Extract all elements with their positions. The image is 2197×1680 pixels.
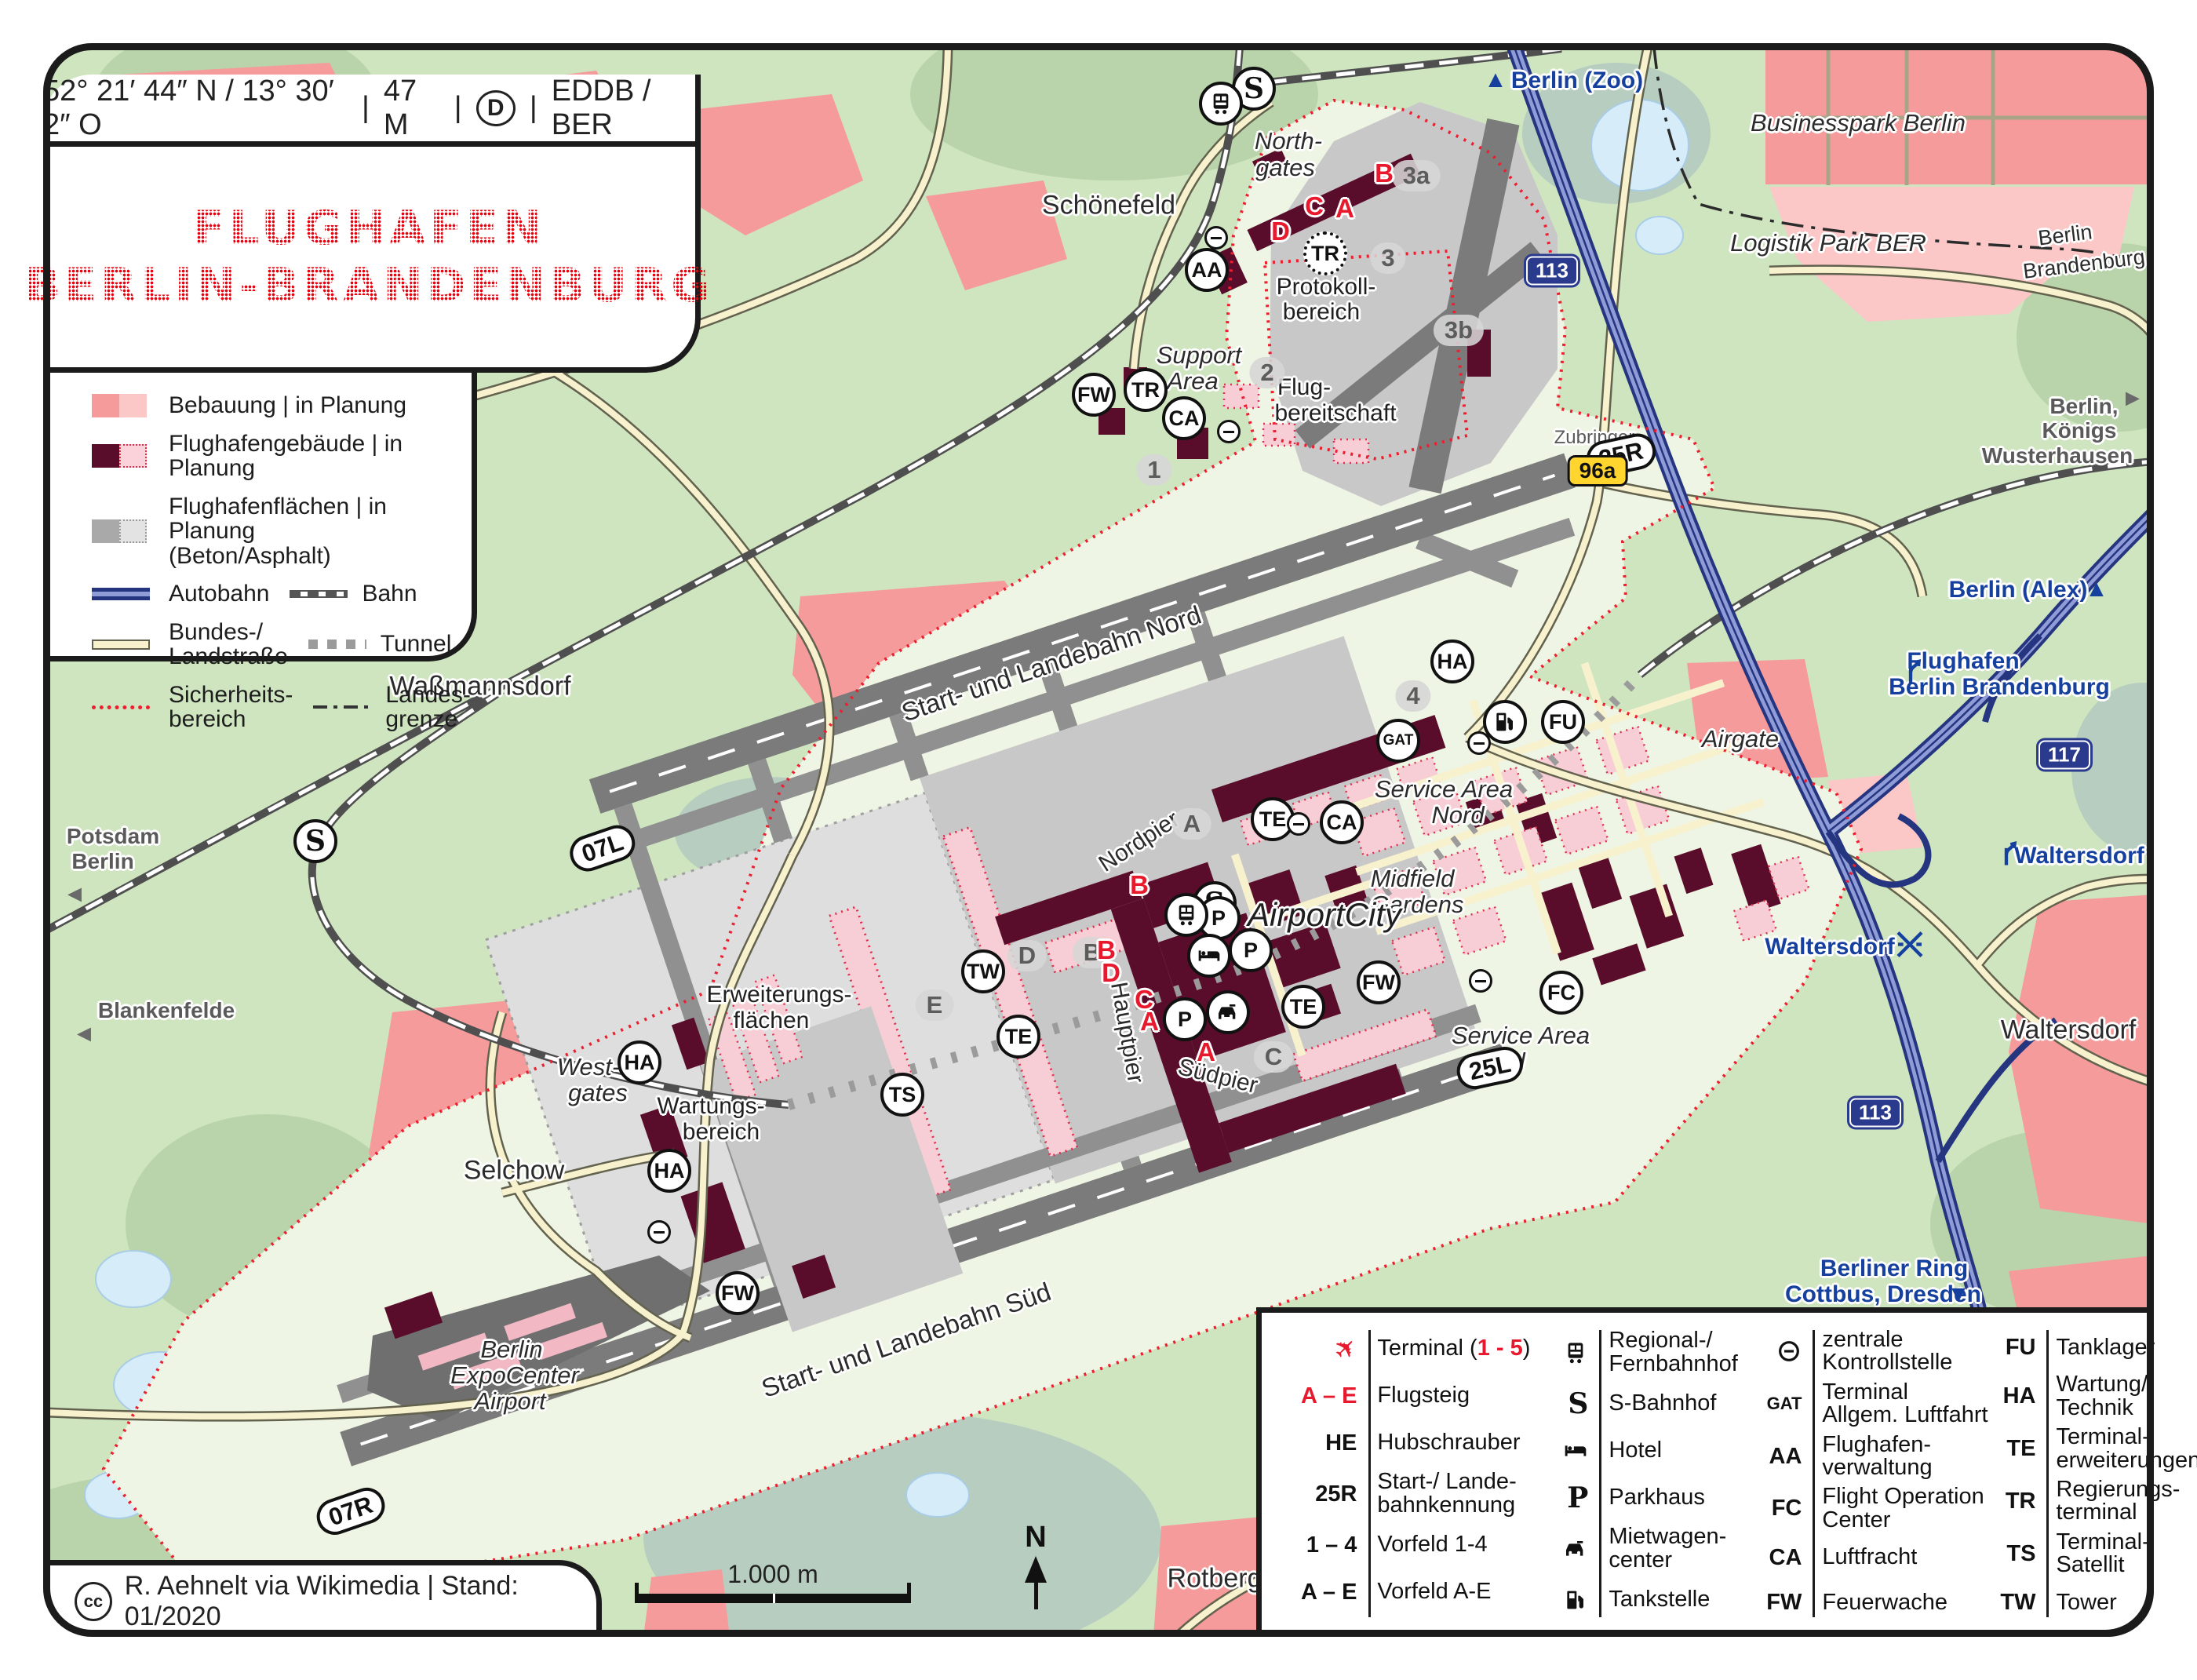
legend-cell-tunnel: Tunnel [308, 632, 452, 657]
symbol-table-row: ✈Terminal (1 - 5) [1274, 1325, 1550, 1372]
train-icon [1199, 82, 1243, 126]
separator: | [530, 91, 537, 125]
column-divider [2046, 1330, 2049, 1617]
road-badge-96a: 96a [1568, 455, 1628, 487]
direction-arrow: ◄ [72, 1021, 96, 1048]
legend-label: Flughafengebäude | in Planung [169, 432, 456, 481]
marker-fu: FU [1541, 700, 1585, 744]
map-label-selchow: Selchow [464, 1156, 565, 1186]
legend-label: Bebauung | in Planung [169, 393, 406, 418]
symbol-code: FW [1758, 1590, 1811, 1616]
symbol-code: A – E [1274, 1580, 1366, 1605]
country-badge: D [476, 90, 516, 126]
map-label-berlin-zoo-: Berlin (Zoo) [1511, 67, 1643, 94]
kontrollstelle-icon [1287, 812, 1310, 836]
gebaeude-swatch [92, 444, 150, 468]
map-label-airgate: Airgate [1702, 725, 1779, 753]
marker-fw: FW [1072, 373, 1116, 417]
map-label-k-nigs: Königs [2042, 418, 2117, 443]
symbol-table-row: Mietwagen-center [1550, 1521, 1758, 1576]
legend-row-bebauung: Bebauung | in Planung [92, 393, 456, 418]
map-page: SchönefeldWaßmannsdorfSelchowRotbergWalt… [0, 0, 2197, 1680]
map-label-rotberg: Rotberg [1168, 1564, 1262, 1594]
symbol-table-row: zentraleKontrollstelle [1758, 1325, 1998, 1378]
marker-p: P [1163, 997, 1207, 1041]
symbol-table-row: FWFeuerwache [1758, 1580, 1998, 1625]
coordinates: 52° 21′ 44″ N / 13° 30′ 2″ O [43, 75, 348, 142]
symbol-table-column-1: ✈Terminal (1 - 5)A – EFlugsteigHEHubschr… [1274, 1325, 1550, 1625]
map-label-wartungs-: Wartungs- [657, 1093, 764, 1120]
map-label-north-: North- [1255, 127, 1322, 155]
column-divider [1368, 1330, 1371, 1617]
symbol-table-row: HAWartung/Technik [1998, 1370, 2197, 1423]
legend-row-autobahn-bahn: Autobahn Bahn [92, 581, 456, 607]
apron-label-d: D [1007, 940, 1047, 971]
plane-icon: ✈ [1274, 1333, 1366, 1365]
direction-arrow: ► [2121, 385, 2144, 412]
map-label-berlin: Berlin [71, 849, 133, 874]
map-label-airport: Airport [474, 1387, 545, 1416]
symbol-label: Luftfracht [1811, 1546, 1998, 1569]
legend-label: Flughafenflächen | in Planung(Beton/Asph… [169, 494, 456, 569]
map-label-berlin-alex-: Berlin (Alex) [1949, 577, 2088, 603]
symbol-table-row: SS-Bahnhof [1550, 1380, 1758, 1427]
gate-letter-b: B [1375, 159, 1394, 188]
symbol-code: AA [1758, 1444, 1811, 1470]
symbol-code: HE [1274, 1430, 1366, 1456]
bed-icon [1187, 934, 1231, 978]
symbol-code: FC [1758, 1496, 1811, 1521]
marker-ts: TS [880, 1073, 924, 1117]
symbol-table-row: FCFlight OperationCenter [1758, 1483, 1998, 1536]
autobahn-badge-117: 117 [2039, 741, 2090, 770]
autobahn-badge-113: 113 [1849, 1099, 1901, 1128]
direction-arrow: ◄ [63, 881, 86, 908]
map-label-protokoll-: Protokoll- [1277, 274, 1376, 301]
map-label-sch-nefeld: Schönefeld [1042, 191, 1175, 221]
marker-fw: FW [716, 1271, 760, 1315]
symbol-code: S [1550, 1387, 1598, 1420]
map-label-service-area: Service Area [1375, 775, 1513, 804]
gate-letter-d: D [1271, 217, 1290, 246]
marker-tr: TR [1124, 368, 1168, 412]
marker-tr-planned: TR [1303, 231, 1347, 275]
apron-label-3: 3 [1370, 242, 1405, 274]
apron-label-e: E [916, 989, 954, 1021]
kontrollstelle-icon [1217, 420, 1241, 443]
map-label-bereitschaft: bereitschaft [1274, 400, 1396, 427]
symbol-code: TS [1998, 1541, 2045, 1567]
scalebar-label: 1.000 m [635, 1560, 911, 1589]
symbol-label: Vorfeld A-E [1366, 1580, 1550, 1604]
kontrollstelle-icon [1467, 731, 1491, 755]
kontrollstelle-icon [1204, 226, 1228, 250]
motorway-exit-icon [1995, 838, 2026, 873]
map-label-erweiterungs-: Erweiterungs- [706, 982, 851, 1008]
map-label-gates: gates [568, 1079, 628, 1107]
flaechen-swatch [92, 519, 150, 543]
north-arrow [1025, 1556, 1047, 1583]
marker-fc: FC [1539, 971, 1583, 1015]
scale-bar: 1.000 m [635, 1560, 911, 1603]
bed-icon [1550, 1438, 1598, 1463]
marker-fw: FW [1357, 960, 1401, 1004]
direction-arrow: ▲ [2085, 576, 2108, 603]
symbol-code: TW [1998, 1590, 2045, 1616]
map-label-blankenfelde: Blankenfelde [98, 998, 235, 1023]
map-label-berliner-ring: Berliner Ring [1820, 1255, 1968, 1282]
gate-letter-a: A [1140, 1007, 1159, 1037]
legend-row-strasse-tunnel: Bundes-/Landstraße Tunnel [92, 620, 456, 669]
map-label-waltersdorf: Waltersdorf [1765, 934, 1895, 960]
gate-letter-b: B [1130, 870, 1149, 900]
map-label-flug-: Flug- [1277, 374, 1331, 401]
symbol-label: Regierungs-terminal [2045, 1478, 2197, 1525]
apron-label-c: C [1254, 1041, 1293, 1073]
symbol-table-row: FUTanklager [1998, 1325, 2197, 1370]
symbol-label: Mietwagen-center [1598, 1525, 1758, 1572]
map-label-service-area: Service Area [1452, 1022, 1590, 1050]
apron-label-4: 4 [1395, 680, 1430, 712]
map-label-fl-chen: flächen [734, 1008, 810, 1034]
apron-label-3b: 3b [1434, 315, 1484, 346]
marker-ha: HA [647, 1149, 691, 1193]
legend-row-sicherheit-grenze: Sicherheits-bereich Landes-grenze [92, 683, 456, 732]
map-label-bereich: bereich [1283, 299, 1360, 326]
legend-row-gebaeude: Flughafengebäude | in Planung [92, 432, 456, 481]
symbol-table-row: AAFlughafen-verwaltung [1758, 1430, 1998, 1483]
symbol-code: A – E [1274, 1383, 1366, 1409]
map-label-wusterhausen: Wusterhausen [1982, 443, 2133, 468]
map-label-gates: gates [1255, 154, 1315, 182]
autobahn-swatch [92, 588, 150, 600]
car-icon [1206, 990, 1250, 1034]
symbol-table-row: TWTower [1998, 1580, 2197, 1625]
map-label-logistik-park-ber: Logistik Park BER [1730, 229, 1926, 257]
map-label-area: Area [1167, 367, 1218, 395]
symbol-code: HA [1998, 1383, 2045, 1409]
map-label-midfield: Midfield [1371, 865, 1455, 893]
legend-label: Sicherheits-bereich [169, 683, 293, 732]
apron-label-3a: 3a [1392, 160, 1441, 191]
symbol-table-row: HEHubschrauber [1274, 1419, 1550, 1467]
symbol-label: Start-/ Lande-bahnkennung [1366, 1470, 1550, 1517]
elevation: 47 M [384, 75, 440, 142]
symbol-table-row: Hotel [1550, 1427, 1758, 1474]
sicherheit-swatch [92, 705, 150, 709]
symbol-label: Parkhaus [1598, 1486, 1758, 1510]
symbol-code: TE [1998, 1436, 2045, 1462]
symbol-code: FU [1998, 1335, 2045, 1361]
attribution: cc R. Aehnelt via Wikimedia | Stand: 01/… [43, 1560, 602, 1637]
gate-letter-a: A [1335, 194, 1354, 224]
legend-label: Bundes-/Landstraße [169, 620, 288, 669]
map-label-west-: West- [557, 1053, 620, 1081]
train-icon [1164, 893, 1208, 937]
direction-arrow: ▲ [1484, 67, 1507, 93]
apron-label-1: 1 [1136, 454, 1171, 486]
symbol-code: CA [1758, 1545, 1811, 1571]
symbol-table-row: TETerminal-erweiterungen [1998, 1423, 2197, 1475]
interchange-icon [1894, 929, 1926, 964]
map-label-waltersdorf: Waltersdorf [2014, 843, 2144, 869]
kontrollstelle-icon [1469, 969, 1492, 993]
map-label-bereich: bereich [683, 1119, 760, 1146]
marker-p: P [1229, 928, 1273, 972]
map-label-potsdam: Potsdam [67, 824, 159, 849]
sbahn-station-icon: S [293, 819, 337, 863]
symbol-label: zentraleKontrollstelle [1811, 1328, 1998, 1375]
symbol-table-row: A – EVorfeld A-E [1274, 1569, 1550, 1616]
map-label-berlin-: Berlin, [2049, 394, 2118, 419]
symbol-table: ✈Terminal (1 - 5)A – EFlugsteigHEHubschr… [1256, 1307, 2154, 1637]
symbol-table-row: A – EFlugsteig [1274, 1372, 1550, 1419]
map-label-expocenter: ExpoCenter [450, 1361, 579, 1390]
marker-ha: HA [618, 1040, 661, 1084]
marker-gat: GAT [1376, 719, 1420, 763]
page-title-line2: BERLIN-BRANDENBURG [24, 261, 713, 311]
symbol-table-row: CALuftfracht [1758, 1535, 1998, 1580]
symbol-label: Terminal-erweiterungen [2045, 1426, 2197, 1472]
autobahn-badge-113: 113 [1526, 257, 1578, 286]
marker-te: TE [1281, 985, 1325, 1029]
legend-label: Autobahn [169, 581, 269, 607]
symbol-table-column-4: FUTanklagerHAWartung/TechnikTETerminal-e… [1998, 1325, 2197, 1625]
separator: | [454, 91, 462, 125]
column-divider [1813, 1330, 1815, 1617]
symbol-table-row: 25RStart-/ Lande-bahnkennung [1274, 1467, 1550, 1521]
symbol-label: Feuerwache [1811, 1591, 1998, 1615]
map-label-berlin: Berlin [480, 1336, 542, 1364]
title-box: FLUGHAFEN BERLIN-BRANDENBURG [43, 147, 701, 373]
symbol-label: Hubschrauber [1366, 1431, 1550, 1455]
symbol-table-column-2: Regional-/FernbahnhofSS-BahnhofHotelPPar… [1550, 1325, 1758, 1625]
bebauung-swatch [92, 394, 150, 417]
column-divider [1599, 1330, 1601, 1617]
map-label-waltersdorf: Waltersdorf [2001, 1015, 2137, 1046]
symbol-label: Flight OperationCenter [1811, 1485, 1998, 1532]
symbol-label: Regional-/Fernbahnhof [1598, 1329, 1758, 1376]
symbol-code: GAT [1758, 1394, 1811, 1414]
attribution-text: R. Aehnelt via Wikimedia | Stand: 01/202… [125, 1571, 596, 1632]
symbol-table-row: 1 – 4Vorfeld 1-4 [1274, 1521, 1550, 1569]
train-icon [1550, 1340, 1598, 1365]
symbol-label: Flughafen-verwaltung [1811, 1434, 1998, 1480]
map-label-businesspark-berlin: Businesspark Berlin [1751, 109, 1966, 137]
fuel-icon [1550, 1587, 1598, 1613]
car-icon [1550, 1536, 1598, 1562]
symbol-table-row: Tankstelle [1550, 1576, 1758, 1624]
north-label: N [1025, 1521, 1047, 1554]
header-bar: 52° 21′ 44″ N / 13° 30′ 2″ O | 47 M | D … [43, 75, 701, 147]
symbol-label: Tankstelle [1598, 1588, 1758, 1612]
marker-ca: CA [1162, 396, 1206, 440]
airport-codes: EDDB / BER [552, 75, 695, 142]
symbol-label: Wartung/Technik [2045, 1373, 2197, 1419]
gate-letter-d: D [1102, 958, 1120, 988]
separator: | [362, 91, 370, 125]
motorway-exit-icon [1899, 656, 1930, 691]
legend-cell-grenze: Landes-grenze [313, 683, 470, 732]
north-indicator: N [1025, 1521, 1047, 1609]
symbol-code: P [1550, 1481, 1598, 1514]
symbol-code: 25R [1274, 1481, 1366, 1507]
symbol-table-row: PParkhaus [1550, 1474, 1758, 1521]
bahn-swatch [290, 590, 348, 598]
marker-te: TE [996, 1015, 1040, 1059]
gate-letter-a: A [1197, 1037, 1215, 1067]
symbol-label: Flugsteig [1366, 1384, 1550, 1408]
scalebar [635, 1594, 911, 1603]
symbol-label: TerminalAllgem. Luftfahrt [1811, 1381, 1998, 1427]
cc-icon: cc [75, 1582, 112, 1621]
map-label-airportcity: AirportCity [1248, 896, 1401, 934]
symbol-label: Hotel [1598, 1439, 1758, 1463]
symbol-label: Vorfeld 1-4 [1366, 1533, 1550, 1557]
marker-aa: AA [1185, 248, 1229, 292]
marker-tw: TW [961, 949, 1005, 993]
symbol-label: Terminal (1 - 5) [1366, 1337, 1550, 1361]
symbol-code: 1 – 4 [1274, 1532, 1366, 1558]
legend: Bebauung | in Planung Flughafengebäude |… [43, 373, 477, 661]
marker-ca: CA [1320, 800, 1364, 844]
page-title-line1: FLUGHAFEN [193, 204, 545, 253]
symbol-table-row: GATTerminalAllgem. Luftfahrt [1758, 1378, 1998, 1430]
minus-icon [1758, 1339, 1811, 1364]
kontrollstelle-icon [647, 1220, 671, 1244]
direction-arrow: ▼ [1947, 1281, 1970, 1308]
map-label-support: Support [1157, 341, 1242, 370]
apron-label-a: A [1172, 808, 1211, 840]
symbol-label: S-Bahnhof [1598, 1392, 1758, 1416]
map-label-nord: Nord [1431, 801, 1484, 829]
symbol-label: Terminal-Satellit [2045, 1531, 2197, 1577]
symbol-table-row: Regional-/Fernbahnhof [1550, 1325, 1758, 1380]
grenze-swatch [313, 705, 371, 709]
marker-ha: HA [1430, 640, 1474, 683]
apron-label-2: 2 [1249, 357, 1284, 388]
symbol-table-column-3: zentraleKontrollstelleGATTerminalAllgem.… [1758, 1325, 1998, 1625]
symbol-label: Tanklager [2045, 1336, 2197, 1360]
legend-row-flaechen: Flughafenflächen | in Planung(Beton/Asph… [92, 494, 456, 569]
tunnel-swatch [308, 640, 366, 649]
legend-cell-bahn: Bahn [290, 581, 417, 607]
symbol-table-row: TSTerminal-Satellit [1998, 1528, 2197, 1580]
symbol-label: Tower [2045, 1591, 2197, 1615]
strasse-swatch [92, 640, 150, 650]
symbol-table-row: TRRegierungs-terminal [1998, 1475, 2197, 1528]
gate-letter-c: C [1305, 191, 1324, 221]
symbol-code: TR [1998, 1489, 2045, 1514]
